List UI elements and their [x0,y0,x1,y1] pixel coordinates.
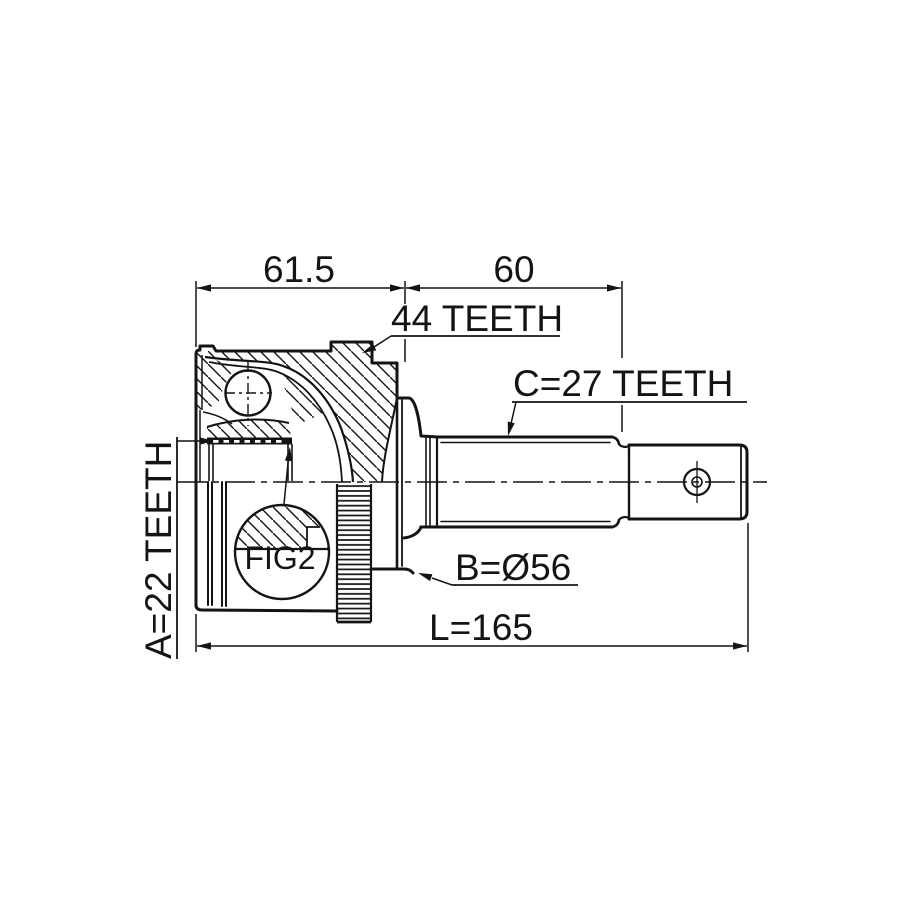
callout-44-teeth-label: 44 TEETH [391,298,563,339]
abs-tone-ring [337,484,371,622]
callout-b-diameter: B=Ø56 [418,547,578,588]
callout-c-27-teeth-label: C=27 TEETH [513,363,733,404]
dim-61-5-label: 61.5 [263,249,335,290]
dim-60-label: 60 [493,249,534,290]
dim-length-label: L=165 [429,607,533,648]
bell-section-hatch [197,342,397,482]
callout-c-27-teeth: C=27 TEETH [508,363,747,436]
callout-a-22-teeth-label: A=22 TEETH [138,441,179,659]
detail-circle-fig2: FIG2 [235,447,329,599]
cv-joint-drawing: FIG2 61.5 60 L=165 44 TEETH [0,0,915,915]
inner-race-spline-bore [207,438,292,482]
drawing-page: FIG2 61.5 60 L=165 44 TEETH [0,0,915,915]
callout-b-diameter-label: B=Ø56 [455,547,571,588]
fig2-label: FIG2 [244,540,315,576]
callout-a-22-teeth: A=22 TEETH [138,437,214,659]
dimension-60: 60 [406,249,622,432]
callout-44-teeth: 44 TEETH [362,298,563,353]
